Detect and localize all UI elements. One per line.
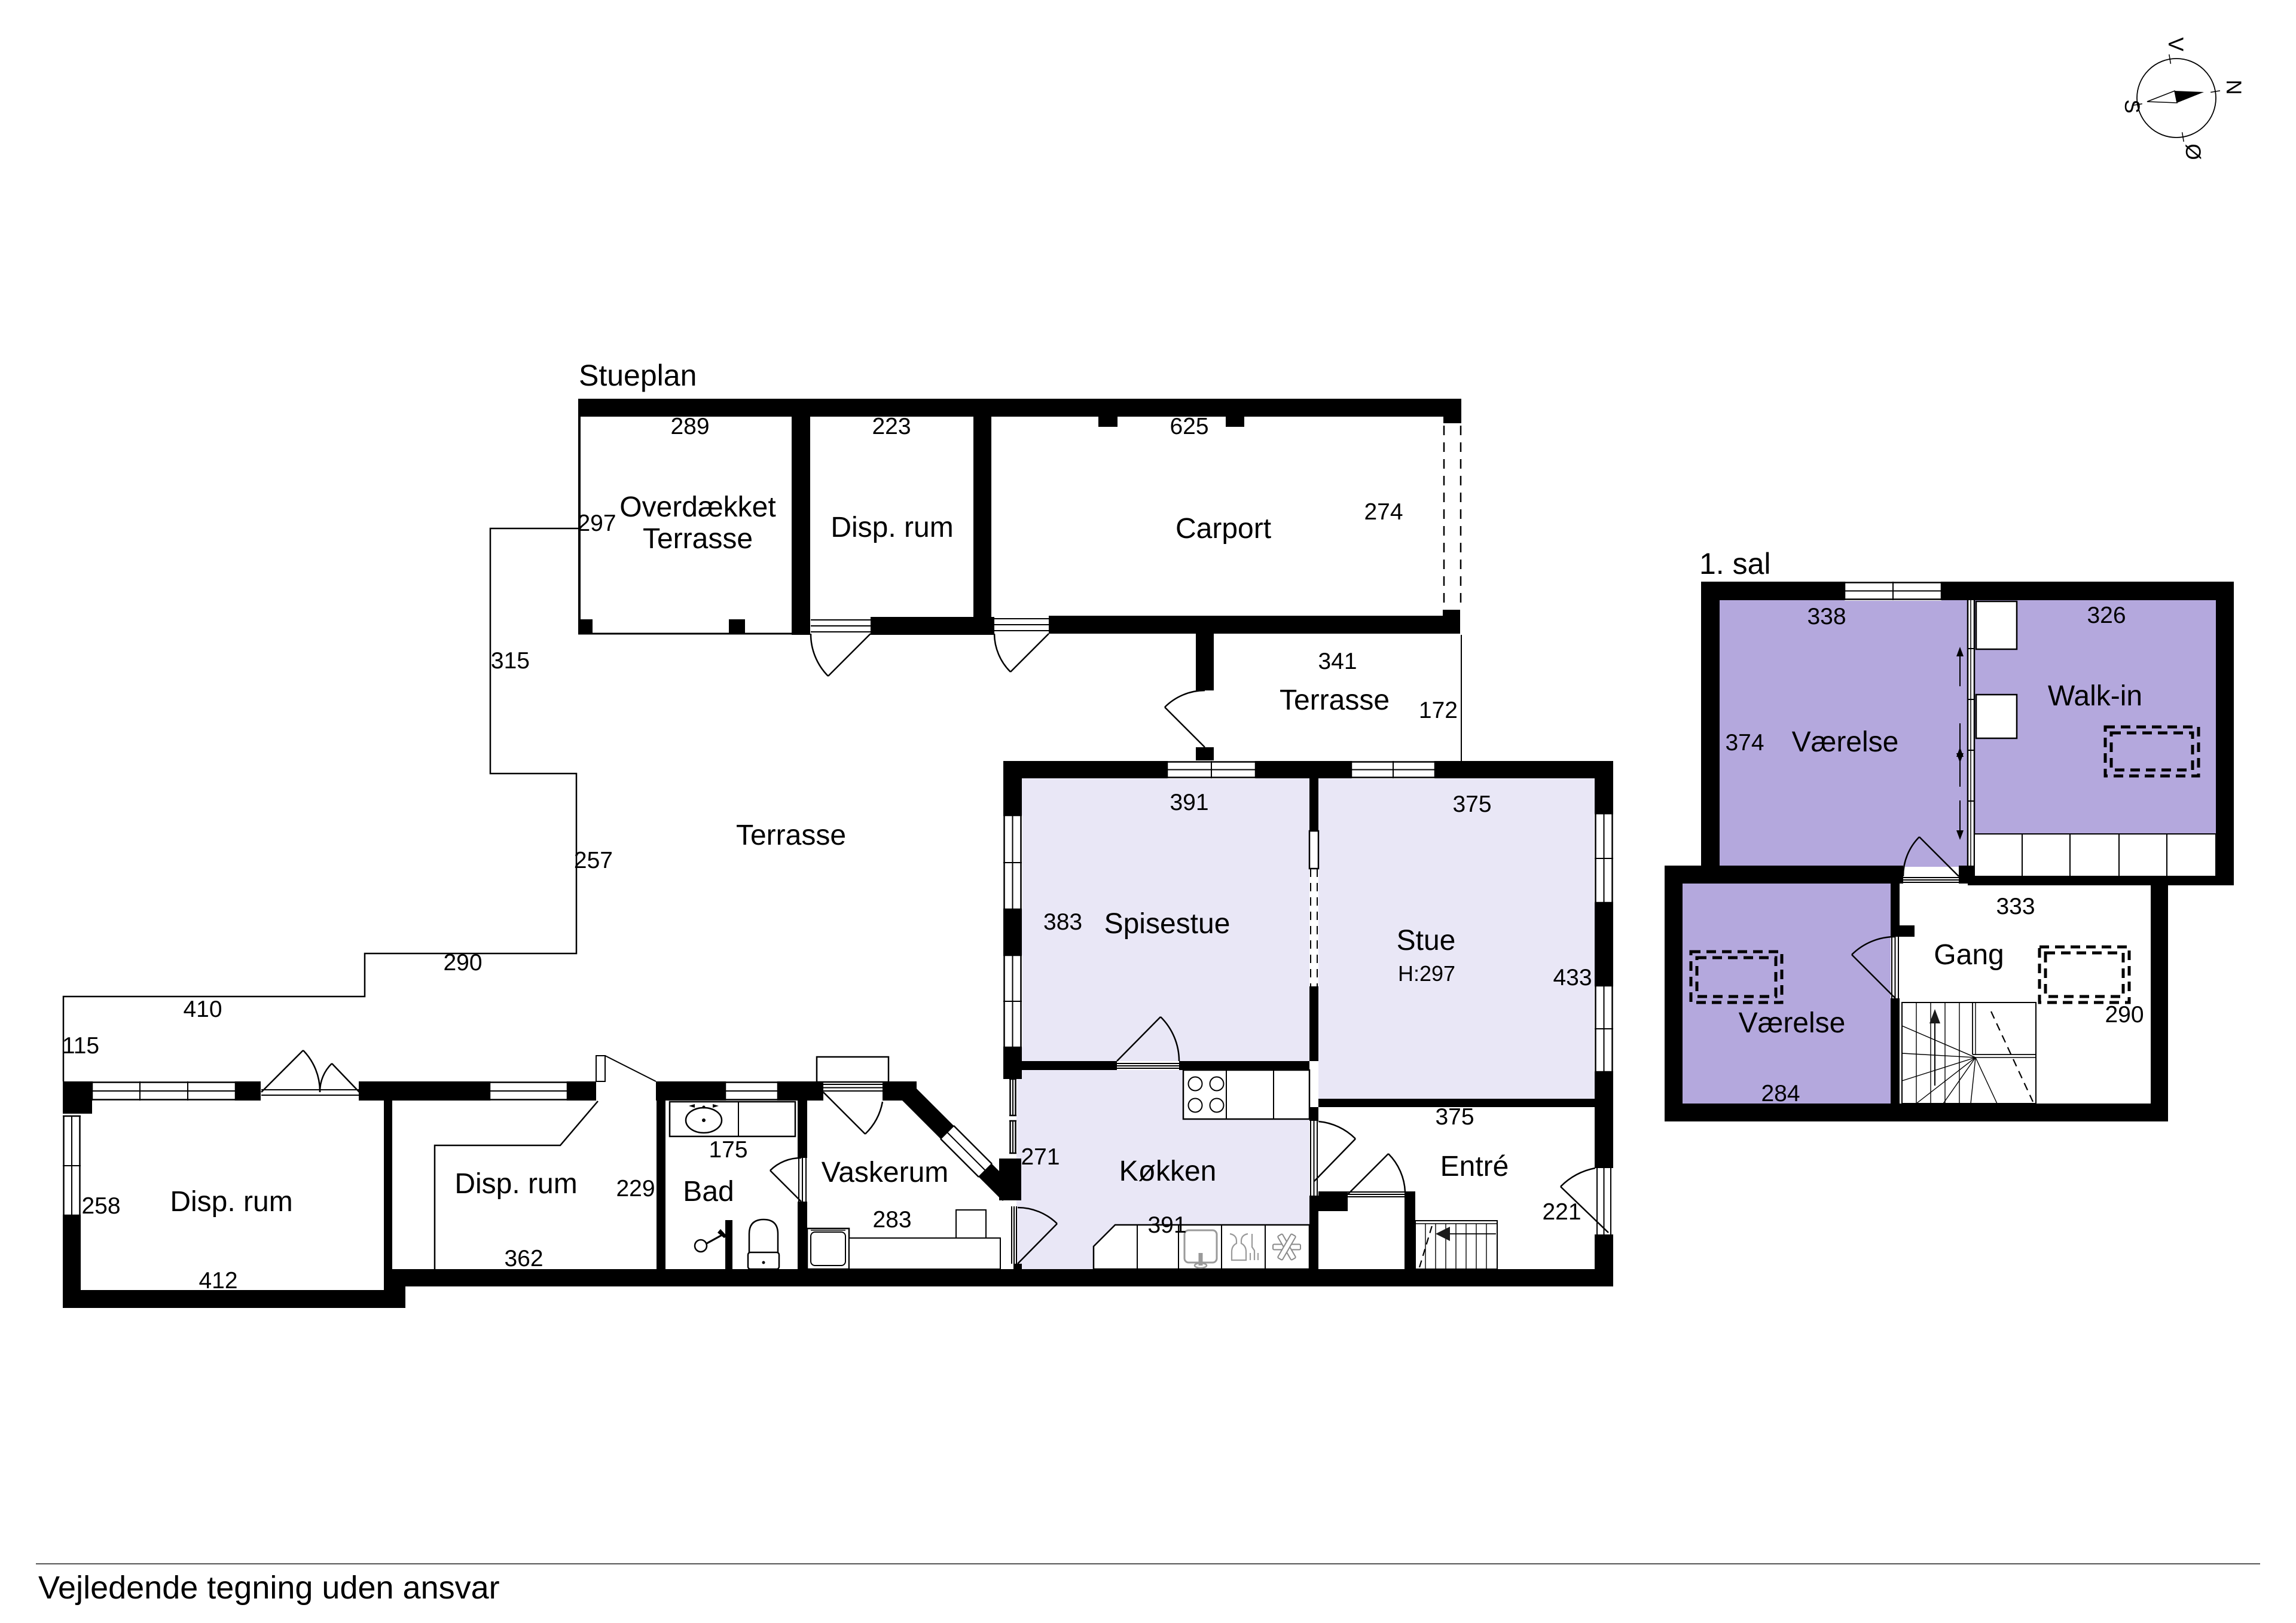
svg-text:315: 315	[491, 648, 530, 674]
svg-text:297: 297	[577, 511, 616, 536]
svg-text:412: 412	[199, 1268, 237, 1294]
svg-text:Stue: Stue	[1397, 925, 1456, 956]
svg-text:374: 374	[1725, 730, 1764, 756]
svg-text:289: 289	[670, 414, 709, 439]
svg-text:223: 223	[872, 414, 911, 439]
svg-text:Bad: Bad	[683, 1176, 734, 1208]
svg-text:Overdækket: Overdækket	[619, 491, 775, 523]
svg-text:290: 290	[443, 950, 482, 976]
svg-text:290: 290	[2105, 1002, 2144, 1028]
svg-text:Walk-in: Walk-in	[2048, 680, 2142, 712]
svg-text:391: 391	[1147, 1212, 1186, 1238]
svg-text:333: 333	[1996, 894, 2035, 919]
svg-text:H:297: H:297	[1398, 961, 1455, 986]
svg-text:V: V	[2164, 37, 2187, 51]
svg-text:Køkken: Køkken	[1119, 1156, 1217, 1187]
svg-text:Disp. rum: Disp. rum	[454, 1168, 577, 1200]
svg-text:N: N	[2222, 80, 2245, 94]
svg-text:115: 115	[62, 1033, 99, 1059]
svg-text:Vaskerum: Vaskerum	[822, 1157, 949, 1188]
svg-text:383: 383	[1043, 909, 1082, 935]
svg-text:172: 172	[1419, 698, 1458, 723]
svg-text:Stueplan: Stueplan	[579, 359, 697, 392]
svg-text:433: 433	[1553, 965, 1592, 991]
svg-text:391: 391	[1170, 790, 1208, 815]
svg-text:229: 229	[616, 1176, 655, 1202]
svg-text:258: 258	[81, 1193, 120, 1219]
svg-text:338: 338	[1807, 604, 1846, 629]
svg-text:284: 284	[1761, 1081, 1800, 1107]
svg-text:Terrasse: Terrasse	[1280, 684, 1390, 716]
svg-text:Ø: Ø	[2181, 143, 2205, 160]
svg-text:175: 175	[709, 1137, 747, 1163]
svg-text:Carport: Carport	[1176, 513, 1271, 545]
svg-text:375: 375	[1435, 1104, 1474, 1130]
svg-text:Gang: Gang	[1934, 939, 2004, 971]
svg-text:Entré: Entré	[1440, 1151, 1509, 1182]
svg-text:Værelse: Værelse	[1739, 1007, 1846, 1039]
svg-text:Disp. rum: Disp. rum	[831, 512, 953, 543]
svg-text:375: 375	[1452, 791, 1491, 817]
svg-text:1. sal: 1. sal	[1699, 547, 1771, 580]
svg-text:341: 341	[1318, 649, 1357, 674]
svg-text:257: 257	[574, 848, 613, 873]
svg-text:625: 625	[1170, 414, 1208, 439]
svg-text:326: 326	[2087, 603, 2126, 628]
svg-text:Terrasse: Terrasse	[643, 523, 753, 555]
svg-text:Disp. rum: Disp. rum	[170, 1186, 292, 1218]
svg-text:410: 410	[183, 997, 222, 1022]
svg-text:Spisestue: Spisestue	[1104, 908, 1231, 940]
svg-text:Vejledende tegning uden ansvar: Vejledende tegning uden ansvar	[38, 1570, 500, 1606]
svg-text:221: 221	[1542, 1199, 1581, 1225]
svg-text:362: 362	[504, 1246, 543, 1271]
svg-text:Terrasse: Terrasse	[736, 820, 846, 851]
svg-text:271: 271	[1021, 1144, 1060, 1170]
svg-text:283: 283	[872, 1207, 911, 1233]
svg-text:Værelse: Værelse	[1792, 726, 1899, 758]
svg-text:S: S	[2120, 99, 2144, 113]
svg-text:274: 274	[1364, 499, 1403, 525]
